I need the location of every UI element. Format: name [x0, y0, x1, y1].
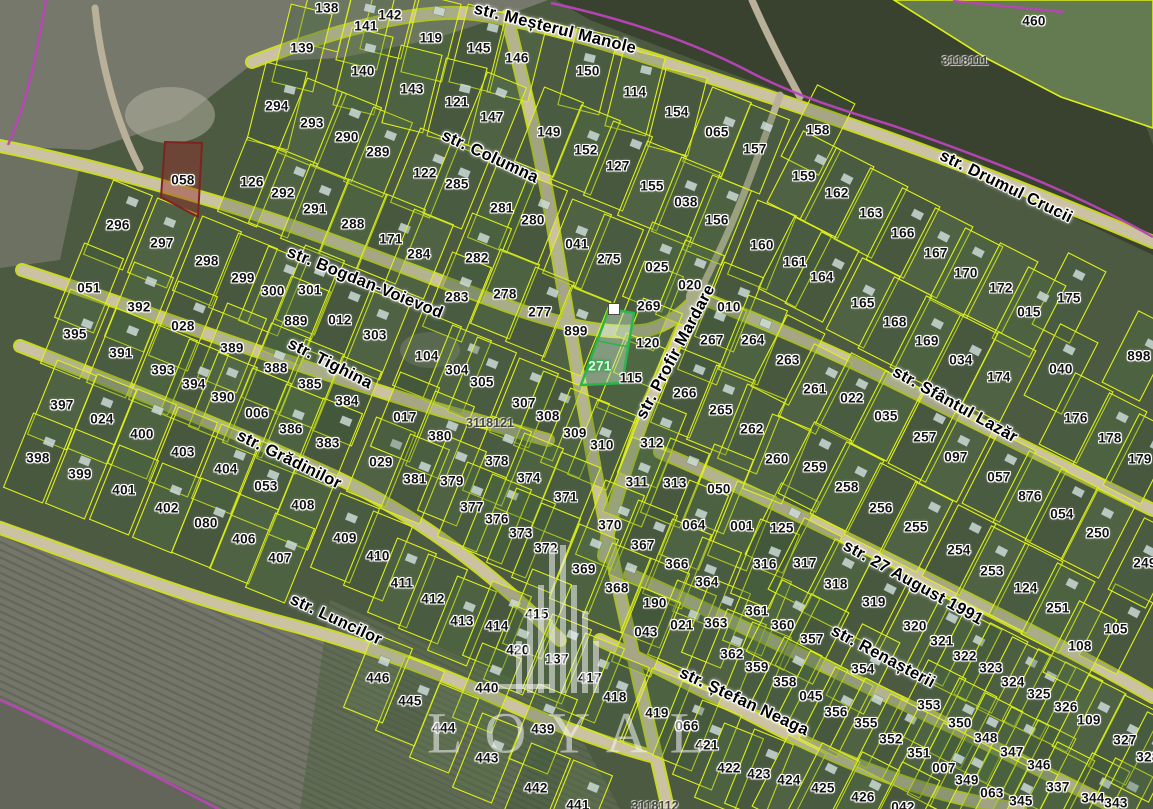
parcel-label[interactable]: 397 — [50, 398, 73, 413]
parcel-label[interactable]: 316 — [753, 557, 776, 572]
parcel-label[interactable]: 353 — [917, 698, 940, 713]
parcel-label[interactable]: 066 — [675, 719, 698, 734]
parcel-label[interactable]: 368 — [605, 581, 628, 596]
parcel-label[interactable]: 407 — [268, 551, 291, 566]
parcel-label[interactable]: 040 — [1049, 362, 1072, 377]
parcel-label[interactable]: 265 — [709, 403, 732, 418]
parcel-label[interactable]: 385 — [298, 377, 321, 392]
parcel-label[interactable]: 147 — [480, 110, 503, 125]
cadastral-sector-ref: 3118112 — [631, 799, 678, 809]
parcel-label[interactable]: 284 — [407, 247, 430, 262]
parcel-label[interactable]: 159 — [792, 169, 815, 184]
parcel-label[interactable]: 345 — [1009, 794, 1032, 809]
parcel-label[interactable]: 253 — [980, 564, 1003, 579]
parcel-label[interactable]: 290 — [335, 130, 358, 145]
parcel-label[interactable]: 156 — [705, 213, 728, 228]
parcel-label[interactable]: 876 — [1018, 489, 1041, 504]
parcel-label[interactable]: 355 — [854, 716, 877, 731]
parcel-label[interactable]: 309 — [563, 426, 586, 441]
parcel-label[interactable]: 412 — [421, 592, 444, 607]
parcel-label[interactable]: 104 — [415, 349, 438, 364]
parcel-label[interactable]: 169 — [915, 334, 938, 349]
parcel-label[interactable]: 160 — [750, 238, 773, 253]
parcel-label[interactable]: 149 — [537, 125, 560, 140]
parcel-label[interactable]: 256 — [869, 501, 892, 516]
parcel-label[interactable]: 443 — [475, 751, 498, 766]
parcel-label[interactable]: 323 — [979, 661, 1002, 676]
parcel-label[interactable]: 150 — [576, 64, 599, 79]
parcel-label[interactable]: 115 — [620, 371, 643, 386]
parcel-label[interactable]: 372 — [534, 541, 557, 556]
parcel-label[interactable]: 022 — [840, 391, 863, 406]
parcel-label[interactable]: 310 — [590, 438, 613, 453]
parcel-label[interactable]: 374 — [517, 471, 540, 486]
parcel-label[interactable]: 343 — [1104, 796, 1127, 809]
parcel-label[interactable]: 408 — [291, 498, 314, 513]
parcel-label[interactable]: 389 — [220, 341, 243, 356]
parcel-label[interactable]: 042 — [891, 800, 914, 809]
parcel-label[interactable]: 266 — [673, 386, 696, 401]
parcel-label[interactable]: 390 — [211, 390, 234, 405]
parcel-label[interactable]: 346 — [1027, 758, 1050, 773]
parcel-label[interactable]: 006 — [245, 406, 268, 421]
parcel-label[interactable]: 029 — [369, 455, 392, 470]
parcel-label[interactable]: 025 — [645, 260, 668, 275]
parcel-label[interactable]: 420 — [506, 643, 529, 658]
parcel-label[interactable]: 172 — [989, 281, 1012, 296]
parcel-label[interactable]: 105 — [1104, 622, 1127, 637]
parcel-label[interactable]: 140 — [351, 64, 374, 79]
parcel-label[interactable]: 282 — [465, 251, 488, 266]
parcel-label[interactable]: 401 — [112, 483, 135, 498]
parcel-label[interactable]: 038 — [674, 195, 697, 210]
parcel-label[interactable]: 263 — [776, 353, 799, 368]
parcel-label[interactable]: 163 — [859, 206, 882, 221]
parcel-label[interactable]: 122 — [413, 166, 436, 181]
parcel-label[interactable]: 301 — [298, 283, 321, 298]
parcel-label[interactable]: 381 — [403, 472, 426, 487]
parcel-label[interactable]: 171 — [379, 232, 402, 247]
parcel-label[interactable]: 311 — [626, 475, 649, 490]
parcel-label[interactable]: 251 — [1046, 601, 1069, 616]
parcel-label[interactable]: 015 — [1017, 305, 1040, 320]
parcel-label[interactable]: 319 — [862, 595, 885, 610]
parcel-label[interactable]: 327 — [1113, 733, 1136, 748]
parcel-label[interactable]: 179 — [1128, 452, 1151, 467]
parcel-label[interactable]: 442 — [524, 781, 547, 796]
parcel-label[interactable]: 356 — [824, 705, 847, 720]
parcel-label[interactable]: 278 — [493, 287, 516, 302]
parcel-label[interactable]: 120 — [636, 336, 659, 351]
parcel-label[interactable]: 121 — [445, 95, 468, 110]
parcel-label[interactable]: 064 — [682, 518, 705, 533]
parcel-label[interactable]: 376 — [485, 512, 508, 527]
parcel-label[interactable]: 176 — [1064, 411, 1087, 426]
parcel-label[interactable]: 167 — [924, 246, 947, 261]
parcel-label[interactable]: 280 — [521, 213, 544, 228]
parcel-label[interactable]: 168 — [883, 315, 906, 330]
parcel-label[interactable]: 328 — [1136, 750, 1153, 765]
parcel-label[interactable]: 350 — [948, 716, 971, 731]
parcel-label[interactable]: 051 — [77, 281, 100, 296]
parcel-label[interactable]: 125 — [770, 521, 793, 536]
parcel-label[interactable]: 392 — [127, 300, 150, 315]
parcel-label[interactable]: 264 — [741, 333, 764, 348]
parcel-label[interactable]: 414 — [485, 619, 508, 634]
parcel-label[interactable]: 357 — [800, 632, 823, 647]
parcel-label[interactable]: 124 — [1014, 581, 1037, 596]
parcel-label[interactable]: 444 — [432, 721, 455, 736]
parcel-label[interactable]: 413 — [450, 614, 473, 629]
parcel-label[interactable]: 261 — [803, 382, 826, 397]
parcel-label[interactable]: 119 — [420, 31, 443, 46]
parcel-label[interactable]: 139 — [290, 41, 313, 56]
parcel-label[interactable]: 300 — [261, 284, 284, 299]
parcel-label[interactable]: 057 — [987, 470, 1010, 485]
parcel-label[interactable]: 035 — [874, 409, 897, 424]
parcel-label[interactable]: 440 — [475, 681, 498, 696]
parcel-label[interactable]: 305 — [470, 375, 493, 390]
parcel-label[interactable]: 415 — [525, 607, 548, 622]
parcel-label[interactable]: 317 — [793, 556, 816, 571]
parcel-label[interactable]: 161 — [783, 255, 806, 270]
parcel-label[interactable]: 164 — [810, 270, 833, 285]
parcel-label[interactable]: 146 — [505, 51, 528, 66]
parcel-label[interactable]: 441 — [566, 798, 589, 809]
parcel-label[interactable]: 360 — [771, 618, 794, 633]
parcel-label[interactable]: 145 — [467, 41, 490, 56]
parcel-label[interactable]: 108 — [1068, 639, 1091, 654]
parcel-label[interactable]: 403 — [171, 445, 194, 460]
parcel-label[interactable]: 190 — [643, 596, 666, 611]
parcel-label[interactable]: 017 — [393, 410, 416, 425]
parcel-label[interactable]: 043 — [634, 625, 657, 640]
parcel-label[interactable]: 294 — [265, 99, 288, 114]
parcel-label[interactable]: 337 — [1046, 780, 1069, 795]
parcel-label[interactable]: 383 — [316, 436, 339, 451]
parcel-label[interactable]: 024 — [90, 412, 113, 427]
parcel-label[interactable]: 155 — [640, 179, 663, 194]
parcel-label[interactable]: 157 — [743, 142, 766, 157]
parcel-label[interactable]: 348 — [974, 731, 997, 746]
parcel-label[interactable]: 373 — [509, 526, 532, 541]
cadastral-sector-ref: 3118111 — [942, 54, 989, 68]
parcel-label[interactable]: 257 — [913, 430, 936, 445]
parcel-label[interactable]: 174 — [987, 370, 1010, 385]
parcel-label[interactable]: 109 — [1077, 713, 1100, 728]
parcel-label[interactable]: 281 — [490, 201, 513, 216]
map-canvas[interactable] — [0, 0, 1153, 809]
selected-parcel-marker[interactable] — [608, 303, 620, 315]
parcel-label[interactable]: 899 — [564, 324, 587, 339]
parcel-label[interactable]: 439 — [531, 722, 554, 737]
parcel-label[interactable]: 045 — [799, 689, 822, 704]
parcel-label[interactable]: 097 — [944, 450, 967, 465]
parcel-label[interactable]: 165 — [851, 296, 874, 311]
parcel-label[interactable]: 296 — [106, 218, 129, 233]
parcel-label[interactable]: 363 — [704, 616, 727, 631]
parcel-label[interactable]: 421 — [695, 738, 718, 753]
parcel-label[interactable]: 369 — [572, 562, 595, 577]
parcel-label[interactable]: 312 — [640, 436, 663, 451]
cadastral-sector-ref: 3118121 — [466, 416, 514, 430]
parcel-label[interactable]: 349 — [955, 773, 978, 788]
parcel-label[interactable]: 352 — [879, 732, 902, 747]
parcel-label[interactable]: 388 — [264, 361, 287, 376]
parcel-label[interactable]: 308 — [536, 409, 559, 424]
parcel-label[interactable]: 371 — [554, 490, 577, 505]
parcel-label[interactable]: 354 — [851, 662, 874, 677]
parcel-label[interactable]: 417 — [578, 671, 601, 686]
parcel-label[interactable]: 398 — [26, 451, 49, 466]
parcel-label[interactable]: 370 — [598, 518, 621, 533]
parcel-label[interactable]: 285 — [445, 177, 468, 192]
parcel-label[interactable]: 141 — [354, 19, 377, 34]
parcel-label[interactable]: 423 — [747, 767, 770, 782]
parcel-label[interactable]: 162 — [825, 186, 848, 201]
parcel-label[interactable]: 898 — [1127, 349, 1150, 364]
parcel-label[interactable]: 254 — [947, 543, 970, 558]
parcel-label[interactable]: 126 — [240, 175, 263, 190]
parcel-label[interactable]: 050 — [707, 482, 730, 497]
parcel-label[interactable]: 137 — [545, 652, 568, 667]
parcel-label[interactable]: 404 — [214, 462, 237, 477]
parcel-label[interactable]: 303 — [363, 328, 386, 343]
parcel-label[interactable]: 021 — [670, 618, 693, 633]
parcel-label[interactable]: 053 — [254, 479, 277, 494]
parcel-label[interactable]: 324 — [1001, 675, 1024, 690]
parcel-label[interactable]: 426 — [851, 790, 874, 805]
parcel-label[interactable]: 259 — [803, 460, 826, 475]
parcel-label[interactable]: 283 — [445, 290, 468, 305]
parcel-label[interactable]: 292 — [271, 186, 294, 201]
parcel-label[interactable]: 424 — [777, 773, 800, 788]
parcel-label[interactable]: 034 — [949, 353, 972, 368]
parcel-label[interactable]: 380 — [428, 429, 451, 444]
parcel-label[interactable]: 394 — [182, 377, 205, 392]
parcel-label[interactable]: 260 — [765, 452, 788, 467]
parcel-label[interactable]: 358 — [773, 675, 796, 690]
parcel-label[interactable]: 326 — [1054, 700, 1077, 715]
parcel-label[interactable]: 288 — [341, 217, 364, 232]
parcel-label[interactable]: 175 — [1057, 291, 1080, 306]
parcel-label[interactable]: 138 — [315, 1, 338, 16]
parcel-label[interactable]: 411 — [391, 576, 414, 591]
parcel-label[interactable]: 307 — [512, 396, 535, 411]
parcel-label[interactable]: 313 — [663, 476, 686, 491]
parcel-label[interactable]: 275 — [597, 252, 620, 267]
parcel-label[interactable]: 364 — [695, 575, 718, 590]
parcel-label[interactable]: 293 — [300, 116, 323, 131]
parcel-label[interactable]: 395 — [63, 327, 86, 342]
parcel-label[interactable]: 361 — [745, 604, 768, 619]
parcel-label[interactable]: 384 — [335, 394, 358, 409]
parcel-label[interactable]: 304 — [445, 363, 468, 378]
parcel-label[interactable]: 258 — [835, 480, 858, 495]
parcel-label[interactable]: 378 — [485, 454, 508, 469]
parcel-label[interactable]: 170 — [954, 266, 977, 281]
parcel-label[interactable]: 325 — [1027, 687, 1050, 702]
parcel-label[interactable]: 250 — [1086, 526, 1109, 541]
parcel-label[interactable]: 445 — [398, 694, 421, 709]
parcel-label[interactable]: 001 — [730, 519, 753, 534]
parcel-label[interactable]: 393 — [151, 363, 174, 378]
parcel-label[interactable]: 010 — [717, 300, 740, 315]
parcel-label[interactable]: 065 — [705, 125, 728, 140]
parcel-label[interactable]: 409 — [333, 531, 356, 546]
parcel-label[interactable]: 366 — [665, 557, 688, 572]
parcel-label[interactable]: 255 — [904, 520, 927, 535]
parcel-label[interactable]: 054 — [1050, 507, 1073, 522]
parcel-label[interactable]: 419 — [645, 706, 668, 721]
parcel-label[interactable]: 142 — [378, 8, 401, 23]
parcel-label[interactable]: 359 — [745, 660, 768, 675]
parcel-label[interactable]: 289 — [366, 145, 389, 160]
erosion-patch — [125, 87, 215, 143]
parcel-label[interactable]: 012 — [328, 313, 351, 328]
parcel-label[interactable]: 400 — [130, 427, 153, 442]
parcel-label[interactable]: 889 — [284, 314, 307, 329]
parcel-label[interactable]: 166 — [891, 226, 914, 241]
parcel-label[interactable]: 143 — [400, 82, 423, 97]
parcel-label[interactable]: 299 — [231, 271, 254, 286]
parcel-label[interactable]: 267 — [700, 333, 723, 348]
parcel-label[interactable]: 298 — [195, 254, 218, 269]
red-parcel-label[interactable]: 058 — [171, 173, 194, 188]
parcel-label[interactable]: 402 — [155, 501, 178, 516]
parcel-label[interactable]: 041 — [565, 237, 588, 252]
parcel-label[interactable]: 377 — [460, 500, 483, 515]
parcel-label[interactable]: 391 — [109, 346, 132, 361]
parcel-label[interactable]: 320 — [903, 619, 926, 634]
parcel-label[interactable]: 422 — [717, 761, 740, 776]
parcel-label[interactable]: 460 — [1022, 14, 1045, 29]
parcel-label[interactable]: 114 — [624, 85, 647, 100]
parcel-label[interactable]: 249 — [1133, 556, 1153, 571]
parcel-label[interactable]: 318 — [824, 577, 847, 592]
parcel-label[interactable]: 262 — [740, 422, 763, 437]
parcel-label[interactable]: 351 — [907, 746, 930, 761]
parcel-label[interactable]: 362 — [720, 647, 743, 662]
parcel-label[interactable]: 291 — [303, 202, 326, 217]
parcel-label[interactable]: 322 — [953, 649, 976, 664]
parcel-label[interactable]: 446 — [366, 671, 389, 686]
parcel-label[interactable]: 277 — [528, 305, 551, 320]
parcel-label[interactable]: 344 — [1081, 791, 1104, 806]
parcel-label[interactable]: 154 — [665, 105, 688, 120]
parcel-label[interactable]: 406 — [232, 532, 255, 547]
parcel-label[interactable]: 297 — [150, 236, 173, 251]
parcel-label[interactable]: 269 — [637, 299, 660, 314]
parcel-label[interactable]: 080 — [194, 516, 217, 531]
parcel-label[interactable]: 399 — [68, 467, 91, 482]
parcel-label[interactable]: 367 — [631, 538, 654, 553]
satellite-cadastral-map[interactable]: 1381421411391402942932902891262922912882… — [0, 0, 1153, 809]
parcel-label[interactable]: 321 — [930, 634, 953, 649]
parcel-label[interactable]: 379 — [440, 474, 463, 489]
parcel-label[interactable]: 386 — [279, 422, 302, 437]
parcel-label[interactable]: 347 — [1000, 745, 1023, 760]
parcel-label[interactable]: 152 — [574, 143, 597, 158]
parcel-label[interactable]: 410 — [366, 549, 389, 564]
parcel-label[interactable]: 158 — [806, 123, 829, 138]
parcel-label[interactable]: 063 — [980, 786, 1003, 801]
parcel-label[interactable]: 007 — [932, 761, 955, 776]
parcel-label[interactable]: 418 — [603, 690, 626, 705]
parcel-label[interactable]: 028 — [171, 319, 194, 334]
green-parcel-label[interactable]: 271 — [588, 359, 611, 374]
parcel-label[interactable]: 127 — [606, 159, 629, 174]
parcel-label[interactable]: 425 — [811, 781, 834, 796]
parcel-label[interactable]: 178 — [1098, 431, 1121, 446]
